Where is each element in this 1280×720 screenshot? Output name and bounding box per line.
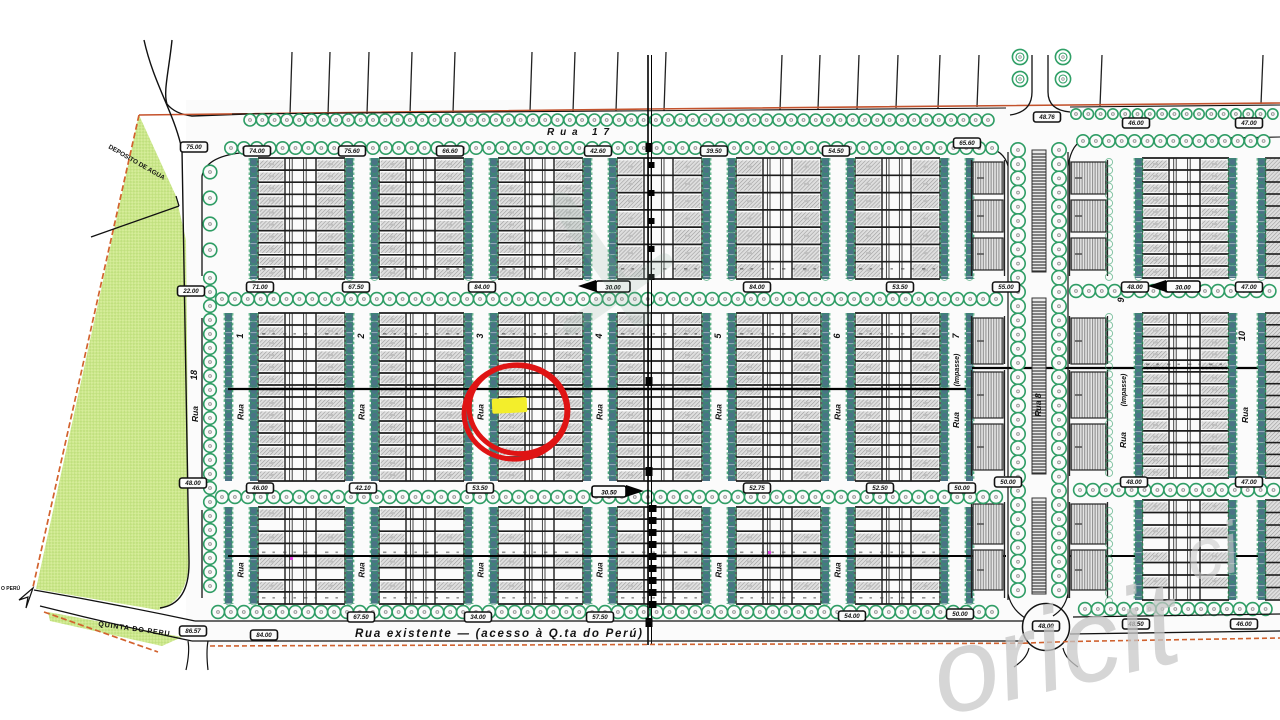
svg-text:O PERÚ: O PERÚ bbox=[1, 585, 21, 592]
